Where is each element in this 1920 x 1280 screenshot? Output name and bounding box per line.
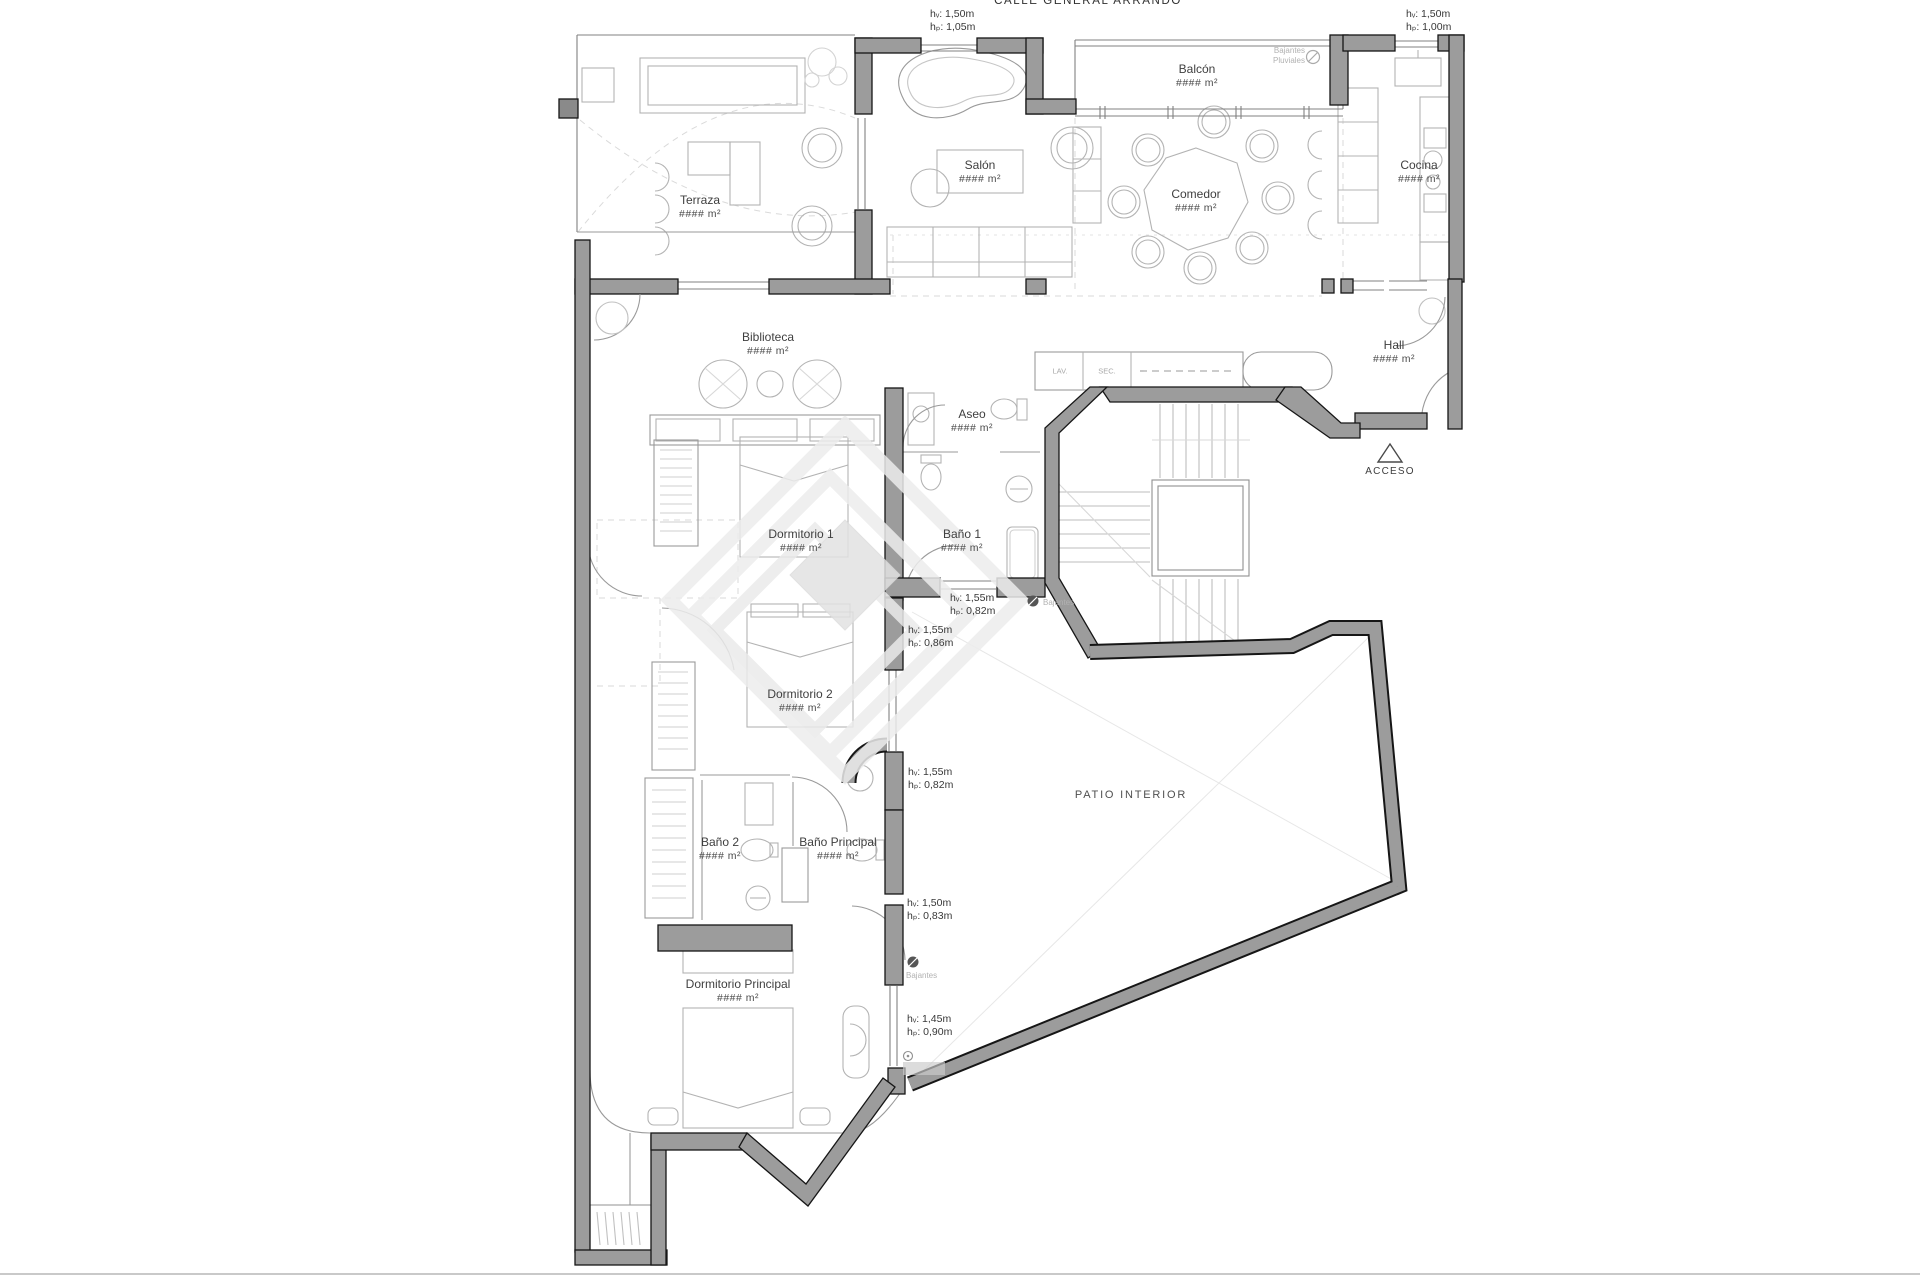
terrace-furniture [577, 48, 857, 255]
staircase [1058, 404, 1250, 652]
annotation-master-window: hᵥ: 1,45mhₚ: 0,90m [907, 1013, 952, 1039]
room-label-comedor: Comedor#### m² [1171, 187, 1220, 215]
annotation-dorm2-window-b: hᵥ: 1,55mhₚ: 0,82m [908, 766, 953, 792]
street-title: CALLE GENERAL ARRANDO [994, 0, 1182, 7]
bajantes-icon-3 [904, 1052, 913, 1061]
bajantes-label-1: Bajantes [1043, 598, 1074, 608]
room-label-aseo: Aseo#### m² [951, 407, 993, 435]
bajantes-icon-2 [908, 957, 919, 968]
closet-label-lav: LAV. [1052, 367, 1067, 376]
acceso-label: ACCESO [1365, 466, 1414, 477]
bajantes-icon-1 [1028, 596, 1039, 607]
room-label-dormitorio1: Dormitorio 1#### m² [768, 527, 833, 555]
closet-label-sec: SEC. [1098, 367, 1116, 376]
utility-closets [1035, 352, 1332, 390]
bajantes-label-2: Bajantes [906, 971, 937, 981]
annotation-bath1-window: hᵥ: 1,55mhₚ: 0,82m [950, 592, 995, 618]
floorplan-sheet: CALLE GENERAL ARRANDO Terraza#### m² Sal… [0, 0, 1920, 1280]
room-label-biblioteca: Biblioteca#### m² [742, 330, 794, 358]
room-label-balcon: Balcón#### m² [1176, 62, 1218, 90]
room-label-terraza: Terraza#### m² [679, 193, 721, 221]
annotation-salon-window: hᵥ: 1,50mhₚ: 1,05m [930, 8, 975, 34]
furniture-layer [577, 48, 1450, 1250]
room-label-cocina: Cocina#### m² [1398, 158, 1440, 186]
annotation-dorm2-window-a: hᵥ: 1,55mhₚ: 0,86m [908, 624, 953, 650]
floorplan-drawing [0, 0, 1920, 1280]
master-bedroom-furniture [590, 906, 905, 1250]
patio-interior-label: PATIO INTERIOR [1075, 789, 1187, 801]
room-label-bano2: Baño 2#### m² [699, 835, 741, 863]
kitchen-fixtures [1073, 50, 1450, 280]
room-label-hall: Hall#### m² [1373, 338, 1415, 366]
room-label-dormitorio-principal: Dormitorio Principal#### m² [686, 977, 791, 1005]
bajantes-pluviales-icon [1307, 51, 1320, 64]
annotation-kitchen-window: hᵥ: 1,50mhₚ: 1,00m [1406, 8, 1451, 34]
library-corner-door [594, 294, 640, 340]
acceso-triangle-icon [1378, 444, 1402, 462]
bajantes-pluviales-label: BajantesPluviales [1245, 46, 1305, 66]
room-label-bano1: Baño 1#### m² [941, 527, 983, 555]
room-label-bano-principal: Baño Principal#### m² [799, 835, 876, 863]
room-label-salon: Salón#### m² [959, 158, 1001, 186]
annotation-bath-principal-window: hᵥ: 1,50mhₚ: 0,83m [907, 897, 952, 923]
room-label-dormitorio2: Dormitorio 2#### m² [767, 687, 832, 715]
